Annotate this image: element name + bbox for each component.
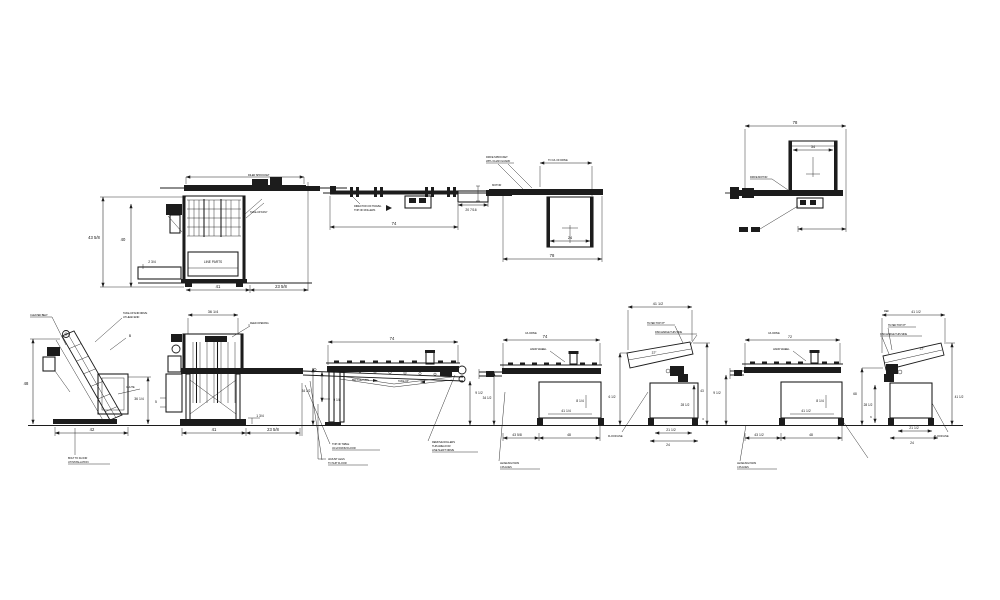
- dim-label: 41: [216, 284, 221, 289]
- note-text: TILTED TOP 37°: [888, 323, 906, 327]
- view-hopper-elevation-upper: 43 5/8 40 2 3/4 41 23 5/8: [88, 173, 347, 293]
- foot: [888, 418, 894, 425]
- dim-label: 43 5/8: [88, 235, 100, 240]
- leg: [329, 372, 334, 422]
- annotations: HAND WHEEL LEVELING PADS 4 PLACES: [737, 347, 806, 469]
- geometry: [138, 177, 347, 287]
- cad-drawing: 43 5/8 40 2 3/4 41 23 5/8: [0, 0, 1000, 600]
- dim-label: 23 5/8: [275, 284, 287, 289]
- note-text: ADJUST LEGS: [328, 457, 345, 461]
- dim-label: 43: [700, 389, 704, 393]
- dim-label: C/L DRIVE: [525, 331, 537, 335]
- note-text: AT HEAD END: [123, 315, 139, 319]
- geometry: [166, 334, 465, 436]
- note-text: DISCHARGE THIS SIDE: [655, 330, 682, 334]
- dim-label: 42: [90, 427, 95, 432]
- dim-label: REF: [884, 309, 889, 313]
- dim-label: 36 1/4: [134, 397, 144, 401]
- travel-arrow-icon: [386, 205, 392, 211]
- note-text: CLEATED BELT: [30, 313, 48, 317]
- dim-label: 34 1/2: [302, 389, 311, 393]
- note-text: DISCHARGE THIS SIDE: [880, 332, 907, 336]
- drive-post: [570, 353, 577, 364]
- table-top-bar: [502, 368, 601, 374]
- dimensions: REF 41 1/2 68 28 1/2 41 1/2 6 21 1/2 24 …: [853, 309, 963, 445]
- dim-label: 24: [568, 236, 572, 240]
- view-incline-elevator: 48 36 1/4 42: [24, 311, 151, 464]
- note-text: HAND WHEEL: [773, 347, 790, 351]
- annotations: DIRECTION OF TRAVEL TOP OF ROLLERS: [352, 196, 392, 212]
- view-conveyor-side: 24 78 DRIVE SPROCKET WITH CHAIN GUARD MO…: [476, 155, 603, 262]
- dim-label: 9 1/2: [713, 391, 721, 395]
- note-text: BOLT TO FLOOR: [68, 456, 87, 460]
- annotations: DRIVE MOTOR: [750, 175, 788, 190]
- foot: [537, 418, 543, 425]
- annotations: FEED OPENING TOP OF TABLE 34 1/2 FROM FL…: [232, 321, 380, 465]
- note-text: LEVELING PADS: [500, 461, 519, 465]
- leg: [236, 374, 240, 420]
- note-text: LINE SHAFT DRIVE: [432, 448, 454, 452]
- dim-label: 20 7/16: [465, 208, 476, 212]
- note-text: REMOVE ROLLERS: [432, 440, 455, 444]
- dim-label: 68: [853, 392, 857, 396]
- foot: [692, 418, 698, 425]
- dim-label: 48: [567, 433, 571, 437]
- panel-label: LINE PARTS: [204, 260, 222, 264]
- note-text: TAKE-UP ASSY: [250, 210, 268, 214]
- dim-label: 34 1/2: [483, 396, 492, 400]
- dim-label: 8 1/4: [816, 399, 824, 403]
- dim-label: 43 5/8: [512, 433, 522, 437]
- note-text: TO C/L OF DRIVE: [548, 158, 568, 162]
- view-conveyor-plan: 74 20 7/16 DIRECTION OF TRAVEL TOP OF RO…: [323, 187, 497, 230]
- note-text: LEVELING PADS: [737, 461, 756, 465]
- dim-label: 3: [702, 417, 704, 421]
- drive-motor: [47, 347, 60, 356]
- base: [53, 419, 117, 424]
- dim-label: 34: [811, 145, 815, 149]
- dim-label: 72: [788, 335, 792, 339]
- line-parts-panel: [188, 252, 238, 276]
- dim-label: 48: [809, 433, 813, 437]
- foot: [648, 418, 654, 425]
- dim-label: 74: [543, 334, 548, 339]
- foot: [325, 422, 341, 426]
- view-tilt-table-2: REF 41 1/2 68 28 1/2 41 1/2 6 21 1/2 24 …: [853, 309, 963, 445]
- dim-label: 6 1/2: [608, 395, 615, 399]
- table-top-bar: [744, 367, 841, 373]
- geometry: [325, 350, 466, 426]
- note-text: HAND WHEEL: [530, 347, 547, 351]
- motor: [166, 204, 182, 215]
- dim-label: 78: [793, 120, 798, 125]
- table-top-bar: [181, 368, 303, 374]
- end-roller: [458, 366, 466, 374]
- geometry: [627, 342, 698, 425]
- note-text: CHUTE: [126, 385, 135, 389]
- dim-label: 1 3/4: [256, 414, 264, 418]
- base-box: [650, 383, 698, 418]
- dim-label: 24: [910, 441, 914, 445]
- note-text: THIS AREA FOR: [432, 444, 451, 448]
- note-text: DRIVE SPROCKET: [486, 155, 508, 159]
- dim-label: 36 1/4: [208, 310, 219, 314]
- note-text: MOTOR: [492, 183, 501, 187]
- dim-label: 24: [666, 443, 670, 447]
- note-text: TAKE-UP: [398, 379, 409, 383]
- dim-label: 48: [24, 381, 29, 386]
- dim-label: 74: [392, 221, 397, 226]
- note-text: TAKE-UP AND DRIVE: [123, 311, 147, 315]
- dim-label: 9 1/2: [475, 391, 483, 395]
- foot: [779, 418, 785, 425]
- drive: [886, 364, 898, 374]
- note-text: WITH CHAIN GUARD: [486, 159, 510, 163]
- note-text: TO SUIT FLOOR: [328, 461, 347, 465]
- view-end-elevation: 78 34 DRIVE MOTOR: [725, 120, 846, 232]
- foot: [751, 227, 760, 232]
- note-text: FEED OPENING: [250, 321, 269, 325]
- table-top-bar: [489, 189, 603, 195]
- foot: [598, 418, 604, 425]
- geometry: [883, 343, 944, 425]
- note-text: B: [129, 334, 132, 338]
- view-box-table-2: 72 C/L DRIVE 9 1/2 8 1/4 41 1/2 43 1/2 4…: [713, 331, 868, 469]
- grid-panel: [187, 200, 241, 236]
- geometry: [476, 186, 603, 247]
- note-text: TILTED TOP 37°: [647, 321, 665, 325]
- drive-post: [426, 352, 434, 364]
- geometry: [43, 331, 128, 425]
- dim-label: 40: [121, 237, 126, 242]
- dim-label: 41 1/4: [561, 409, 571, 413]
- note-text: DRIVE MOTOR: [750, 175, 767, 179]
- dim-label: 78: [550, 253, 555, 258]
- geometry: [730, 350, 868, 458]
- dim-label: 2 3/4: [148, 260, 156, 264]
- incline-belt: [62, 331, 122, 420]
- note-text: TOP OF TABLE: [332, 442, 349, 446]
- table-top-bar: [184, 185, 306, 191]
- note-text: FLOOR LINE: [934, 434, 949, 438]
- dim-label: 6: [870, 415, 872, 419]
- foot: [928, 418, 934, 425]
- dim-label: 28 1/2: [681, 403, 690, 407]
- dim-label: 41 1/2: [653, 302, 664, 306]
- dim-label: 41: [212, 427, 217, 432]
- note-text: IDLER SPROCKET: [248, 173, 270, 177]
- note-text: 4 PLACES: [737, 465, 749, 469]
- dim-label: 5: [155, 400, 157, 404]
- drive-post: [811, 352, 818, 363]
- motor: [171, 334, 182, 342]
- leg: [186, 374, 190, 420]
- dim-label: 21 1/2: [909, 426, 919, 430]
- dim-label: 41 1/2: [801, 409, 811, 413]
- geometry: [725, 141, 843, 232]
- dim-label: 23 5/8: [267, 427, 279, 432]
- annotations: CLEATED BELT TAKE-UP AND DRIVE AT HEAD E…: [30, 311, 147, 464]
- drive-box: [405, 196, 431, 208]
- note-text: BELT RETURN: [352, 378, 369, 382]
- note-text: 34 1/2 FROM FLOOR: [332, 446, 356, 450]
- dimensions: 74 9 1/8 34 1/2: [302, 336, 458, 425]
- dim-label: 41 1/2: [955, 395, 964, 399]
- note-text: DIRECTION OF TRAVEL: [354, 204, 382, 208]
- view-box-table-1: 74 C/L DRIVE 8 1/4 41 1/4 34 1/2 43 5/8 …: [479, 331, 604, 469]
- base: [180, 419, 246, 425]
- table-top-bar: [327, 366, 459, 372]
- dim-label: 28 1/2: [864, 403, 873, 407]
- dim-label: 43 1/2: [754, 433, 764, 437]
- note-text: AT INSTALLATION: [68, 460, 89, 464]
- dim-label: C/L DRIVE: [768, 331, 780, 335]
- cad-drawing-canvas: 43 5/8 40 2 3/4 41 23 5/8: [0, 0, 1000, 600]
- dim-label: 74: [390, 336, 395, 341]
- charge-box: [781, 382, 842, 418]
- note-text: FLOOR LINE: [608, 434, 623, 438]
- tilted-top: [627, 342, 693, 368]
- base-box: [890, 383, 932, 418]
- dim-label: 21 1/2: [666, 428, 676, 432]
- note-text: 4 PLACES: [500, 465, 512, 469]
- annotations: DRIVE SPROCKET WITH CHAIN GUARD MOTOR TO…: [486, 155, 568, 190]
- dim-label: 8 1/4: [576, 399, 584, 403]
- dim-label: 37°: [652, 351, 658, 355]
- view-table-conveyor: 74 9 1/8 34 1/2: [302, 336, 478, 459]
- note-text: TOP OF ROLLERS: [354, 208, 375, 212]
- dim-label: 41 1/2: [911, 310, 921, 314]
- foot: [739, 227, 748, 232]
